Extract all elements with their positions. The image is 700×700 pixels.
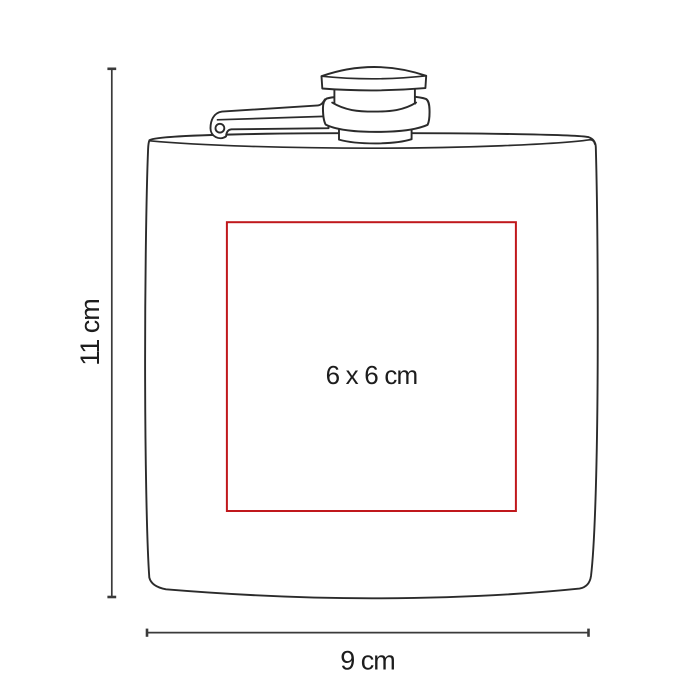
svg-text:9 cm: 9 cm: [340, 646, 395, 676]
svg-text:11 cm: 11 cm: [75, 299, 105, 366]
svg-text:6 x 6 cm: 6 x 6 cm: [326, 360, 418, 390]
